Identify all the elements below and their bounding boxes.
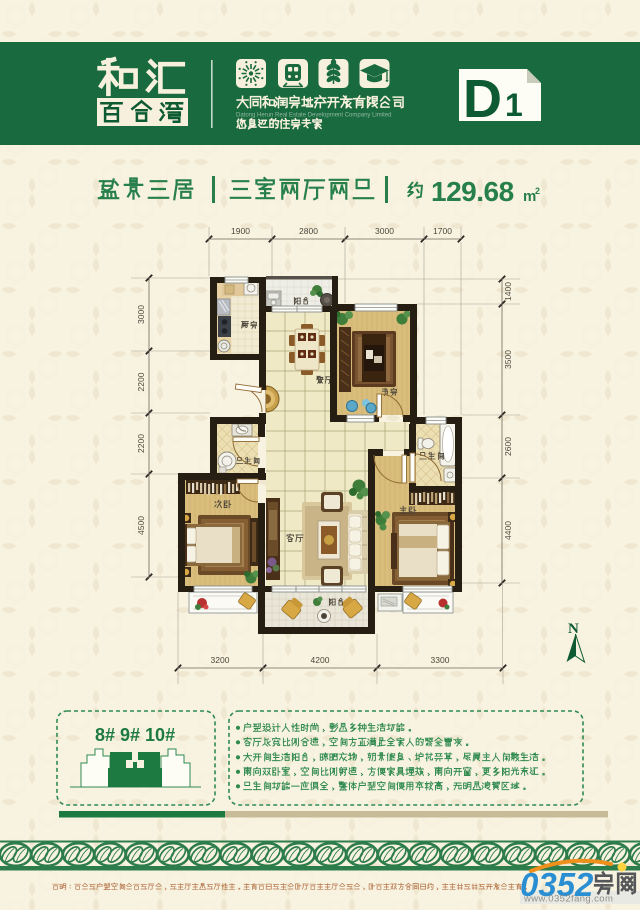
svg-text:1400: 1400 xyxy=(503,282,513,301)
svg-text:8# 9# 10#: 8# 9# 10# xyxy=(95,725,175,745)
svg-text:N: N xyxy=(568,621,579,637)
svg-text:3200: 3200 xyxy=(211,655,230,665)
svg-text:1: 1 xyxy=(505,87,523,123)
svg-text:3500: 3500 xyxy=(503,350,513,369)
svg-text:2800: 2800 xyxy=(299,226,318,236)
svg-text:129.68: 129.68 xyxy=(431,176,514,207)
svg-text:3300: 3300 xyxy=(431,655,450,665)
svg-text:4400: 4400 xyxy=(503,521,513,540)
svg-text:www.0352fang.com: www.0352fang.com xyxy=(523,894,613,905)
svg-text:2600: 2600 xyxy=(503,437,513,456)
svg-text:1700: 1700 xyxy=(433,226,452,236)
svg-text:2: 2 xyxy=(535,186,540,196)
svg-text:4500: 4500 xyxy=(136,516,146,535)
svg-text:2200: 2200 xyxy=(136,434,146,453)
svg-text:2200: 2200 xyxy=(136,372,146,391)
svg-text:1900: 1900 xyxy=(231,226,250,236)
svg-text:4200: 4200 xyxy=(311,655,330,665)
svg-text:3000: 3000 xyxy=(375,226,394,236)
svg-text:3000: 3000 xyxy=(136,305,146,324)
svg-text:D: D xyxy=(463,69,502,129)
svg-text:Datong Herun Real Estate Devel: Datong Herun Real Estate Development Com… xyxy=(236,113,391,119)
